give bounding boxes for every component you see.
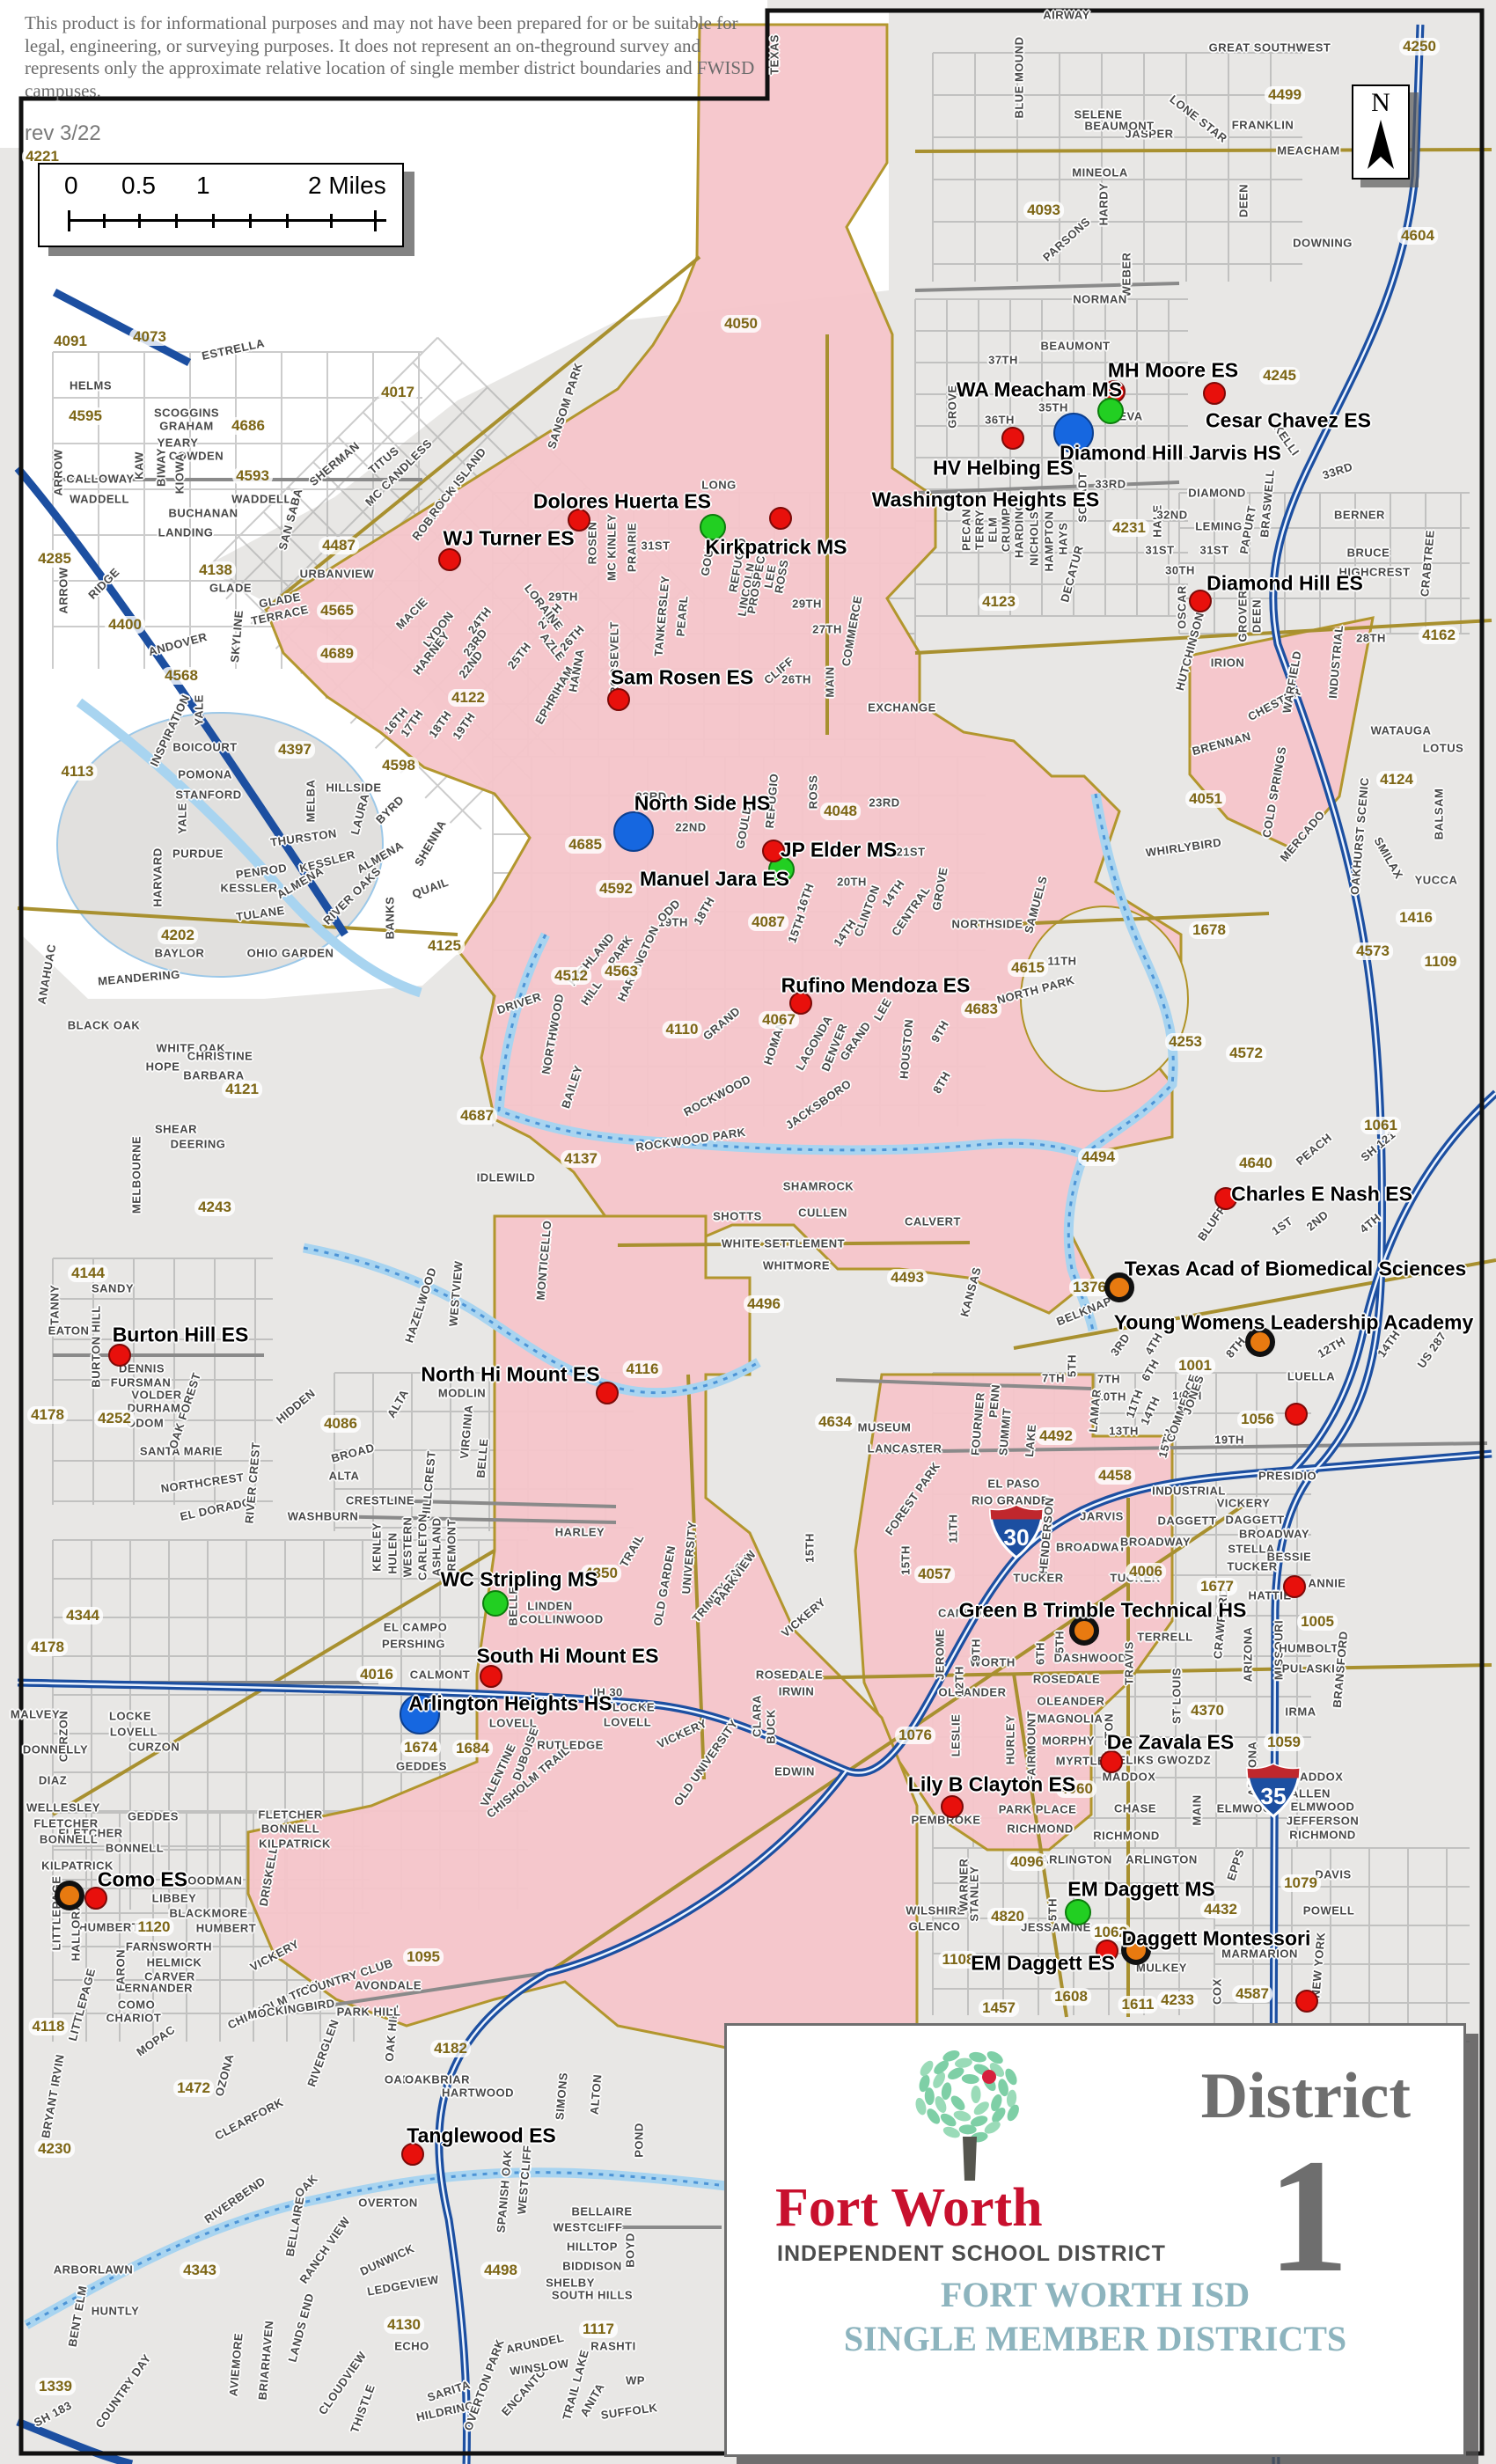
street-label: CURZON bbox=[128, 1741, 180, 1754]
street-label: BIDDISON bbox=[562, 2260, 622, 2273]
street-label: 36TH bbox=[985, 414, 1015, 427]
street-label: INDUSTRIAL bbox=[1152, 1485, 1226, 1498]
street-label: COUNTRY CLUB bbox=[299, 1956, 395, 1998]
street-label: MORPHY bbox=[1042, 1734, 1095, 1748]
street-label: 3RD bbox=[1108, 1331, 1133, 1358]
other-school-marker bbox=[55, 1881, 84, 1910]
street-label: ST LOUIS bbox=[1170, 1668, 1184, 1724]
area-code-label: 4231 bbox=[1109, 519, 1149, 537]
street-label: MEANDERING bbox=[98, 967, 181, 987]
street-label: PARSONS bbox=[1040, 215, 1093, 264]
street-label: WHITE SETTLEMENT bbox=[722, 1237, 845, 1250]
school-label: Diamond Hill ES bbox=[1206, 572, 1363, 596]
street-label: FLETCHER bbox=[258, 1808, 322, 1822]
street-label: KENLEY bbox=[370, 1522, 384, 1572]
area-code-label: 4370 bbox=[1187, 1702, 1228, 1720]
street-label: TRAVIS bbox=[1123, 1641, 1136, 1685]
street-label: BONNELL bbox=[261, 1822, 319, 1836]
school-label: JP Elder MS bbox=[781, 839, 898, 862]
street-label: ESTRELLA bbox=[201, 336, 266, 363]
street-label: FARON bbox=[114, 1949, 128, 1991]
street-label: OAK bbox=[292, 2172, 320, 2200]
street-label: SHAMROCK bbox=[783, 1180, 854, 1193]
area-code-label: 1001 bbox=[1175, 1357, 1215, 1375]
north-label: N bbox=[1353, 88, 1408, 118]
area-code-label: 4113 bbox=[58, 763, 98, 781]
street-label: 35TH bbox=[1038, 401, 1068, 414]
street-label: BONNELL bbox=[40, 1833, 98, 1846]
street-label: WEBER bbox=[1120, 253, 1133, 297]
street-label: PULASKI bbox=[1282, 1662, 1336, 1676]
street-label: BLACK OAK bbox=[68, 1019, 141, 1032]
area-code-label: 4121 bbox=[222, 1081, 262, 1098]
area-code-label: 4344 bbox=[62, 1607, 103, 1624]
street-label: LONE STAR bbox=[1167, 92, 1229, 145]
street-label: 9TH bbox=[970, 1639, 983, 1661]
street-label: OAKBRIAR bbox=[405, 2073, 470, 2086]
street-label: NORTHSIDE bbox=[951, 918, 1023, 931]
street-label: SANTA MARIE bbox=[140, 1445, 223, 1458]
scale-tick bbox=[330, 214, 333, 228]
school-label: Daggett Montessori bbox=[1122, 1927, 1311, 1951]
street-label: OZONA bbox=[212, 2052, 236, 2098]
title-panel: District 1 Fort Worth INDEPENDENT SCHOOL… bbox=[724, 2023, 1466, 2457]
panel-title-line1: FORT WORTH ISD bbox=[727, 2274, 1463, 2315]
street-label: RIVER CREST bbox=[242, 1441, 262, 1524]
street-label: 28TH bbox=[1356, 632, 1386, 645]
street-label: MELBOURNE bbox=[130, 1136, 143, 1214]
street-label: BELLE bbox=[474, 1438, 491, 1478]
street-label: 7TH bbox=[1097, 1373, 1120, 1386]
street-label: COLLINWOOD bbox=[519, 1613, 603, 1626]
street-label: ROSEDALE bbox=[756, 1668, 823, 1682]
area-code-label: 4110 bbox=[663, 1021, 702, 1038]
street-label: LUELLA bbox=[1287, 1370, 1335, 1383]
area-code-label: 4604 bbox=[1397, 227, 1438, 245]
street-label: WP bbox=[626, 2374, 645, 2387]
street-label: CHASE bbox=[1114, 1802, 1156, 1815]
area-code-label: 4093 bbox=[1023, 202, 1064, 219]
street-label: US 287 bbox=[1415, 1330, 1449, 1371]
street-label: ARIZONA bbox=[1242, 1627, 1255, 1683]
street-label: CRUMP bbox=[1000, 508, 1013, 552]
scale-2miles: 2 Miles bbox=[308, 172, 386, 200]
area-code-label: 4016 bbox=[356, 1666, 397, 1683]
street-label: ARLINGTON bbox=[1040, 1853, 1112, 1866]
street-label: WADDELL bbox=[231, 493, 291, 506]
scale-bar-line bbox=[68, 219, 386, 222]
area-code-label: 4285 bbox=[34, 550, 75, 568]
map-page: This product is for informational purpos… bbox=[0, 0, 1496, 2464]
street-label: MUSEUM bbox=[858, 1421, 912, 1434]
street-label: PEARL bbox=[673, 595, 690, 637]
street-label: BEAUMONT bbox=[1040, 340, 1110, 353]
street-label: DIAZ bbox=[39, 1774, 67, 1787]
area-code-label: 1678 bbox=[1189, 921, 1229, 939]
school-label: Manuel Jara ES bbox=[640, 868, 789, 891]
interstate-35-shield-icon: 35 bbox=[1246, 1764, 1301, 1822]
street-label: HAYS bbox=[1057, 523, 1070, 555]
street-label: CLARA bbox=[751, 1695, 764, 1737]
street-label: LANCASTER bbox=[868, 1442, 942, 1456]
street-label: SANDY bbox=[92, 1282, 134, 1295]
street-label: URBANVIEW bbox=[300, 568, 375, 581]
street-label: BLACKMORE bbox=[170, 1907, 248, 1920]
street-label: NORTHCREST bbox=[160, 1470, 245, 1495]
street-label: 7TH bbox=[1042, 1372, 1065, 1385]
street-label: HOPE bbox=[146, 1060, 180, 1074]
street-label: TERRELL bbox=[1137, 1631, 1192, 1644]
street-label: 11TH bbox=[1047, 955, 1076, 968]
svg-text:35: 35 bbox=[1260, 1783, 1286, 1809]
street-label: 11TH bbox=[947, 1514, 960, 1543]
area-code-label: 1684 bbox=[452, 1740, 493, 1757]
fwisd-tree-logo-icon bbox=[885, 2033, 1044, 2182]
scale-0: 0 bbox=[64, 172, 78, 200]
street-label: ALTON bbox=[588, 2073, 605, 2115]
street-label: GLADE bbox=[209, 582, 252, 595]
street-label: BENT ELM bbox=[65, 2284, 89, 2348]
street-label: IDLEWILD bbox=[477, 1171, 536, 1184]
street-label: LAURA bbox=[348, 792, 372, 836]
area-code-label: 4640 bbox=[1236, 1155, 1276, 1172]
area-code-label: 4137 bbox=[561, 1150, 601, 1168]
street-label: ARROW bbox=[52, 449, 65, 495]
street-label: MACIE bbox=[393, 595, 430, 632]
area-code-label: 1095 bbox=[403, 1948, 444, 1966]
street-label: AVIEMORE bbox=[226, 2332, 245, 2396]
area-code-label: 4130 bbox=[384, 2316, 424, 2334]
street-label: 27TH bbox=[812, 623, 842, 636]
street-label: FURSMAN bbox=[111, 1376, 172, 1390]
street-label: DEEN bbox=[1237, 184, 1250, 217]
street-label: KANSAS bbox=[957, 1265, 983, 1318]
hs-school-marker bbox=[613, 811, 654, 852]
street-label: 26TH bbox=[781, 673, 811, 686]
street-label: WHIRLYBIRD bbox=[1145, 836, 1222, 860]
scale-bar: 0 0.5 1 2 Miles bbox=[38, 163, 404, 247]
area-code-label: 4048 bbox=[820, 803, 861, 820]
street-label: YUCCA bbox=[1415, 874, 1458, 887]
area-code-label: 4245 bbox=[1259, 367, 1300, 385]
street-label: DAGGETT bbox=[1225, 1514, 1284, 1527]
school-label: Kirkpatrick MS bbox=[705, 536, 847, 560]
es-school-marker bbox=[769, 507, 792, 530]
street-label: HARVARD bbox=[151, 847, 165, 906]
street-label: HOUSTON bbox=[898, 1018, 916, 1079]
area-code-label: 4634 bbox=[815, 1413, 855, 1431]
area-code-label: 4592 bbox=[596, 880, 636, 898]
street-label: NORMAN bbox=[1073, 293, 1127, 306]
es-school-marker bbox=[1295, 1990, 1318, 2013]
logo-name: Fort Worth bbox=[775, 2177, 1043, 2240]
street-label: FOURNIER bbox=[968, 1392, 986, 1456]
street-label: BANKS bbox=[384, 897, 397, 940]
street-label: INDUSTRIAL bbox=[1326, 625, 1346, 700]
street-label: 21ST bbox=[896, 846, 925, 859]
school-label: Washington Heights ES bbox=[872, 488, 1100, 512]
street-label: WESTCLIFF bbox=[515, 2145, 534, 2215]
area-code-label: 4096 bbox=[1007, 1853, 1047, 1871]
street-label: PECAN bbox=[960, 509, 973, 551]
area-code-label: 4593 bbox=[232, 467, 273, 485]
street-label: GLENCO bbox=[909, 1920, 961, 1933]
street-label: KIOWA bbox=[173, 453, 187, 495]
street-label: STANLEY bbox=[968, 1866, 981, 1921]
street-label: EPPS bbox=[1224, 1847, 1247, 1882]
area-code-label: 4397 bbox=[275, 741, 315, 759]
street-label: RICHMOND bbox=[1093, 1830, 1160, 1843]
area-code-label: 4496 bbox=[744, 1295, 784, 1313]
street-label: TANKERSLEY bbox=[652, 575, 672, 656]
street-label: GEDDES bbox=[396, 1760, 447, 1773]
area-code-label: 4178 bbox=[27, 1639, 68, 1656]
area-code-label: 4124 bbox=[1376, 771, 1417, 788]
street-label: ARUNDEL bbox=[505, 2331, 566, 2357]
street-label: 31ST bbox=[641, 539, 670, 553]
street-label: HILLCREST bbox=[419, 1450, 438, 1519]
street-label: RASHTI bbox=[590, 2340, 635, 2353]
street-label: BALSAM bbox=[1433, 788, 1446, 840]
scale-tick bbox=[138, 214, 141, 228]
street-label: ROCK ISLAND bbox=[427, 445, 489, 520]
school-label: HV Helbing ES bbox=[933, 457, 1074, 480]
street-label: RIVERBEND bbox=[202, 2174, 268, 2226]
street-label: BAYLOR bbox=[155, 947, 205, 960]
street-label: GRAHAM bbox=[159, 420, 214, 433]
area-code-label: 4563 bbox=[601, 963, 642, 980]
north-arrow: N bbox=[1352, 84, 1410, 180]
street-label: CULLEN bbox=[798, 1206, 847, 1220]
street-label: MOPAC bbox=[134, 2023, 178, 2059]
street-label: FARNSWORTH bbox=[126, 1940, 212, 1954]
street-label: ANDOVER bbox=[147, 630, 209, 658]
street-label: 25TH bbox=[505, 640, 534, 671]
street-label: MAGNOLIA bbox=[1038, 1712, 1104, 1726]
street-label: HARTWOOD bbox=[442, 2086, 514, 2100]
street-label: PEACH bbox=[1294, 1131, 1334, 1168]
area-code-label: 4492 bbox=[1036, 1427, 1076, 1445]
street-label: 6TH bbox=[1139, 1357, 1162, 1383]
street-label: HILLSIDE bbox=[326, 781, 381, 795]
street-label: IRION bbox=[1211, 656, 1245, 670]
street-label: 4TH bbox=[1357, 1211, 1383, 1236]
area-code-label: 4162 bbox=[1419, 627, 1459, 644]
area-code-label: 4587 bbox=[1232, 1985, 1272, 2003]
area-code-label: 1608 bbox=[1051, 1988, 1091, 2006]
street-label: HAZELWOOD bbox=[402, 1265, 439, 1344]
street-label: HANNA bbox=[566, 648, 586, 693]
street-label: TANNY bbox=[48, 1285, 62, 1325]
street-label: CALMONT bbox=[410, 1668, 471, 1682]
street-label: TULANE bbox=[235, 904, 285, 924]
street-label: ROSS bbox=[772, 559, 791, 595]
street-label: DEEN bbox=[1250, 599, 1264, 633]
street-label: WATAUGA bbox=[1371, 724, 1432, 737]
street-label: SHENNA bbox=[412, 818, 449, 869]
revision-label: rev 3/22 bbox=[25, 121, 101, 146]
street-label: CRESTLINE bbox=[346, 1494, 414, 1507]
area-code-label: 4087 bbox=[748, 913, 788, 931]
area-code-label: 1120 bbox=[135, 1918, 174, 1936]
street-label: ROSS bbox=[807, 775, 820, 810]
street-label: JACKSBORO bbox=[783, 1077, 854, 1133]
street-label: WESTERN bbox=[401, 1517, 414, 1578]
area-code-label: 1109 bbox=[1421, 953, 1461, 971]
street-label: MONTICELLO bbox=[534, 1220, 554, 1301]
street-label: BRYANT IRVIN bbox=[39, 2053, 67, 2139]
school-label: EM Daggett ES bbox=[971, 1952, 1115, 1976]
street-label: DRISKELL bbox=[257, 1845, 281, 1908]
street-label: PRAIRIE bbox=[626, 523, 639, 572]
street-label: BESSIE bbox=[1267, 1551, 1312, 1564]
area-code-label: 4230 bbox=[34, 2140, 75, 2158]
street-label: TERRY bbox=[973, 510, 986, 550]
street-label: LANDING bbox=[158, 526, 214, 539]
school-label: Texas Acad of Biomedical Sciences bbox=[1125, 1258, 1467, 1281]
street-label: FLETCHER bbox=[33, 1817, 98, 1830]
street-label: MAIN bbox=[1191, 1794, 1204, 1825]
school-label: Charles E Nash ES bbox=[1231, 1183, 1412, 1206]
area-code-label: 4820 bbox=[987, 1908, 1028, 1925]
street-label: 15TH bbox=[785, 913, 808, 945]
street-label: EL DORADO bbox=[179, 1495, 253, 1523]
street-label: 32ND bbox=[1156, 509, 1187, 522]
ms-school-marker bbox=[1097, 398, 1124, 424]
street-label: DIAMOND bbox=[1188, 487, 1246, 500]
street-label: MULKEY bbox=[1136, 1962, 1187, 1975]
area-code-label: 4432 bbox=[1200, 1901, 1241, 1918]
area-code-label: 1677 bbox=[1197, 1578, 1237, 1595]
area-code-label: 4615 bbox=[1008, 959, 1048, 977]
street-label: BRIARHAVEN bbox=[256, 2320, 276, 2401]
area-code-label: 4091 bbox=[50, 333, 91, 350]
school-label: EM Daggett MS bbox=[1067, 1878, 1214, 1902]
street-label: RICHMOND bbox=[1289, 1829, 1356, 1842]
street-label: BELLE bbox=[507, 1586, 520, 1625]
street-label: 29TH bbox=[792, 598, 822, 611]
area-code-label: 4343 bbox=[180, 2262, 220, 2279]
street-label: VICKERY bbox=[1217, 1497, 1271, 1510]
street-label: ARLINGTON bbox=[1126, 1853, 1198, 1866]
scale-tick bbox=[103, 214, 106, 228]
street-label: PARK PLACE bbox=[999, 1803, 1077, 1816]
street-label: 23RD bbox=[869, 796, 899, 810]
street-label: DEERING bbox=[171, 1138, 226, 1151]
street-label: WESTVIEW bbox=[446, 1260, 465, 1327]
street-label: PARKVIEW bbox=[711, 1548, 759, 1608]
area-code-label: 4250 bbox=[1399, 38, 1440, 55]
street-label: VICKERY bbox=[655, 1716, 708, 1750]
svg-text:30: 30 bbox=[1003, 1524, 1029, 1551]
street-label: VICKERY bbox=[779, 1595, 828, 1640]
scale-tick bbox=[374, 210, 377, 231]
street-label: LINDEN bbox=[527, 1600, 572, 1613]
street-label: PERSHING bbox=[382, 1638, 445, 1651]
es-school-marker bbox=[941, 1795, 964, 1818]
area-code-label: 1611 bbox=[1118, 1996, 1158, 2013]
es-school-marker bbox=[607, 688, 630, 711]
street-label: 5TH bbox=[1053, 1631, 1067, 1654]
street-label: SHELBY bbox=[546, 2277, 595, 2290]
street-label: MC KINLEY bbox=[605, 514, 619, 581]
area-code-label: 4498 bbox=[480, 2262, 521, 2279]
school-label: MH Moore ES bbox=[1108, 359, 1238, 383]
street-label: MELBA bbox=[304, 780, 318, 823]
es-school-marker bbox=[1001, 427, 1024, 450]
street-label: CRABTREE bbox=[1418, 529, 1437, 597]
street-label: 37TH bbox=[988, 354, 1018, 367]
street-label: ROCKWOOD PARK bbox=[634, 1126, 746, 1154]
street-label: MODLIN bbox=[438, 1387, 486, 1400]
street-label: 31ST bbox=[1199, 544, 1228, 557]
logo-subtitle: INDEPENDENT SCHOOL DISTRICT bbox=[777, 2241, 1166, 2267]
street-label: WARFIELD bbox=[1280, 649, 1303, 714]
area-code-label: 4118 bbox=[29, 2018, 69, 2035]
area-code-label: 1076 bbox=[895, 1727, 935, 1744]
street-label: SUFFOLK bbox=[600, 2401, 658, 2422]
street-label: COUNTRY DAY bbox=[92, 2351, 153, 2431]
school-label: Dolores Huerta ES bbox=[533, 490, 711, 514]
street-label: FELIKS GWOZDZ bbox=[1111, 1754, 1211, 1767]
street-label: BIWAY bbox=[155, 448, 168, 487]
street-label: SAMUELS bbox=[1022, 875, 1050, 935]
street-label: HAMPTON bbox=[1043, 511, 1056, 572]
street-label: DRIVER bbox=[495, 990, 543, 1016]
area-code-label: 4057 bbox=[914, 1566, 955, 1583]
area-code-label: 4086 bbox=[320, 1415, 361, 1433]
street-label: ROSEDALE bbox=[1033, 1673, 1100, 1686]
street-label: LESLIE bbox=[950, 1714, 963, 1757]
street-label: WELLESLEY bbox=[26, 1801, 100, 1815]
scale-1: 1 bbox=[196, 172, 210, 200]
area-code-label: 1059 bbox=[1264, 1734, 1304, 1751]
street-label: LOCKE bbox=[612, 1701, 655, 1714]
street-label: SH 183 bbox=[32, 2398, 74, 2429]
street-label: AVONDALE bbox=[355, 1979, 422, 1992]
street-label: BROADWAY bbox=[1120, 1536, 1191, 1549]
street-label: SKYLINE bbox=[228, 610, 246, 664]
street-label: 12TH bbox=[953, 1666, 966, 1696]
school-label: Lily B Clayton ES bbox=[908, 1773, 1075, 1797]
street-label: PURDUE bbox=[172, 847, 224, 861]
street-label: 8TH bbox=[930, 1069, 953, 1096]
street-label: IRMA bbox=[1285, 1705, 1316, 1719]
street-label: KILPATRICK bbox=[259, 1837, 331, 1851]
area-code-label: 4067 bbox=[759, 1011, 799, 1029]
school-label: WJ Turner ES bbox=[443, 527, 574, 551]
street-label: NORTH PARK bbox=[995, 973, 1075, 1007]
area-code-label: 4568 bbox=[161, 667, 202, 685]
street-label: STANFORD bbox=[175, 788, 241, 802]
street-label: SOUTH HILLS bbox=[552, 2289, 633, 2302]
area-code-label: 1416 bbox=[1396, 909, 1436, 927]
scale-tick bbox=[68, 210, 70, 231]
street-label: WESTCLIFF bbox=[554, 2221, 623, 2234]
street-label: 5TH bbox=[1066, 1354, 1079, 1377]
street-label: CLINTON bbox=[852, 884, 883, 938]
area-code-label: 4050 bbox=[721, 315, 761, 333]
street-label: GROVER bbox=[1236, 590, 1250, 642]
street-label: QUAIL bbox=[410, 876, 450, 901]
area-code-label: 1079 bbox=[1280, 1874, 1321, 1892]
school-label: Rufino Mendoza ES bbox=[781, 974, 971, 998]
es-school-marker bbox=[1285, 1403, 1308, 1426]
area-code-label: 4689 bbox=[317, 645, 357, 663]
street-label: RUTLEDGE bbox=[537, 1739, 604, 1752]
street-label: CARLETON bbox=[416, 1514, 429, 1580]
street-label: OSCAR bbox=[1176, 585, 1189, 628]
